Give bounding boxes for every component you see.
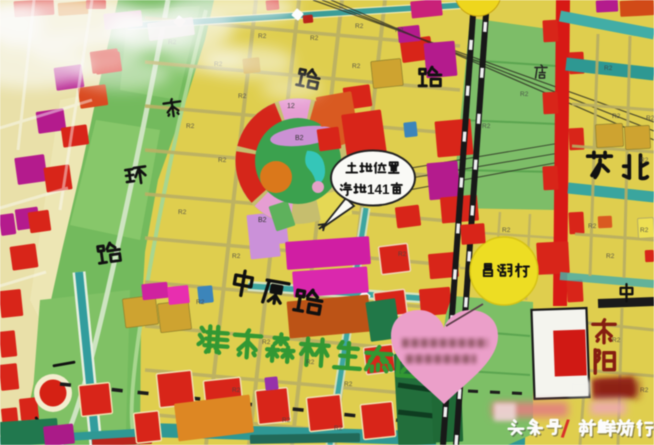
svg-text:R2: R2 <box>186 123 195 130</box>
svg-text:12: 12 <box>287 103 295 110</box>
svg-text:R2: R2 <box>398 251 407 258</box>
svg-text:141: 141 <box>367 182 390 197</box>
svg-text:R2: R2 <box>606 253 615 260</box>
svg-text:R2: R2 <box>218 157 227 164</box>
svg-text:R2: R2 <box>482 123 491 130</box>
svg-text:R2: R2 <box>306 359 315 366</box>
svg-text:R2: R2 <box>502 227 511 234</box>
svg-text:R2: R2 <box>258 33 267 40</box>
svg-text:R2: R2 <box>640 157 649 164</box>
svg-text:R2: R2 <box>232 387 241 394</box>
svg-text:R2: R2 <box>646 115 654 122</box>
svg-text:R2: R2 <box>334 425 343 432</box>
svg-text:R2: R2 <box>355 23 364 30</box>
svg-text:B2: B2 <box>258 217 267 224</box>
svg-text:R2: R2 <box>178 209 187 216</box>
svg-text:R2: R2 <box>196 299 205 306</box>
svg-text:R2: R2 <box>262 339 271 346</box>
svg-text:R2: R2 <box>282 417 291 424</box>
svg-text:R2: R2 <box>588 223 597 230</box>
svg-text:R2: R2 <box>310 35 319 42</box>
svg-text:B2: B2 <box>295 135 304 142</box>
svg-text:R2: R2 <box>238 93 247 100</box>
svg-text:R2: R2 <box>344 381 353 388</box>
svg-text:R2: R2 <box>612 113 621 120</box>
svg-text:R2: R2 <box>640 227 649 234</box>
svg-text:R2: R2 <box>232 253 241 260</box>
svg-text:R2: R2 <box>352 63 361 70</box>
svg-text:R2: R2 <box>604 65 613 72</box>
svg-text:R2: R2 <box>520 91 529 98</box>
svg-text:R2: R2 <box>612 337 621 344</box>
svg-text:R2: R2 <box>640 387 649 394</box>
svg-text:R2: R2 <box>395 27 404 34</box>
